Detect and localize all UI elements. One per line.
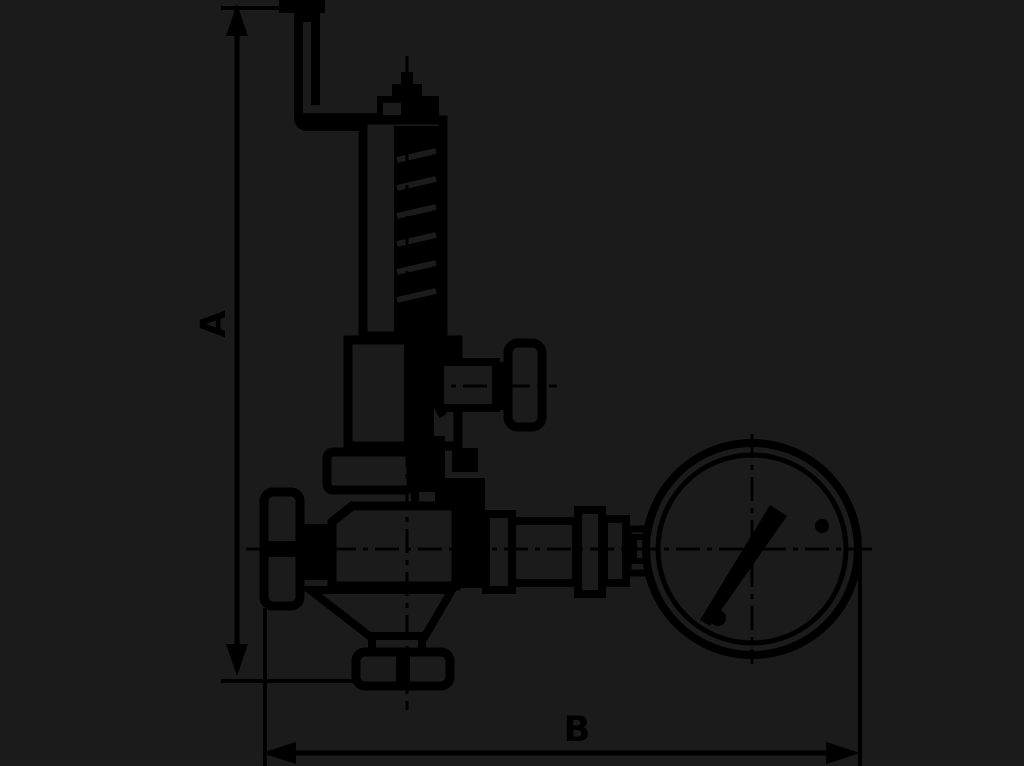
gauge-screw-left bbox=[710, 610, 726, 626]
body-chamber bbox=[332, 506, 456, 586]
valve-assembly bbox=[262, 0, 858, 688]
dimension-b-label: B bbox=[564, 710, 591, 750]
fitting-body bbox=[512, 521, 576, 583]
lifting-lever bbox=[279, 0, 390, 118]
lever-end-bar bbox=[279, 0, 325, 13]
flange-block bbox=[327, 452, 411, 490]
body-funnel bbox=[310, 590, 452, 638]
reducer bbox=[604, 519, 626, 583]
valve-technical-drawing: A B bbox=[0, 0, 1024, 766]
gauge-pipe-run bbox=[456, 510, 656, 594]
valve-body bbox=[262, 492, 456, 688]
gauge-screw-right bbox=[815, 519, 829, 533]
cap-slot bbox=[383, 103, 401, 115]
drawing-canvas: A B bbox=[0, 0, 1024, 766]
arrow-right-icon bbox=[826, 742, 860, 764]
arrow-left-icon bbox=[262, 742, 296, 764]
spring-bonnet bbox=[363, 120, 443, 336]
arrow-down-icon bbox=[226, 644, 248, 676]
inlet-stem bbox=[298, 524, 332, 580]
union-nut-2 bbox=[578, 510, 602, 594]
dimension-a-label: A bbox=[194, 310, 234, 337]
flange-lug-upper bbox=[452, 448, 478, 472]
